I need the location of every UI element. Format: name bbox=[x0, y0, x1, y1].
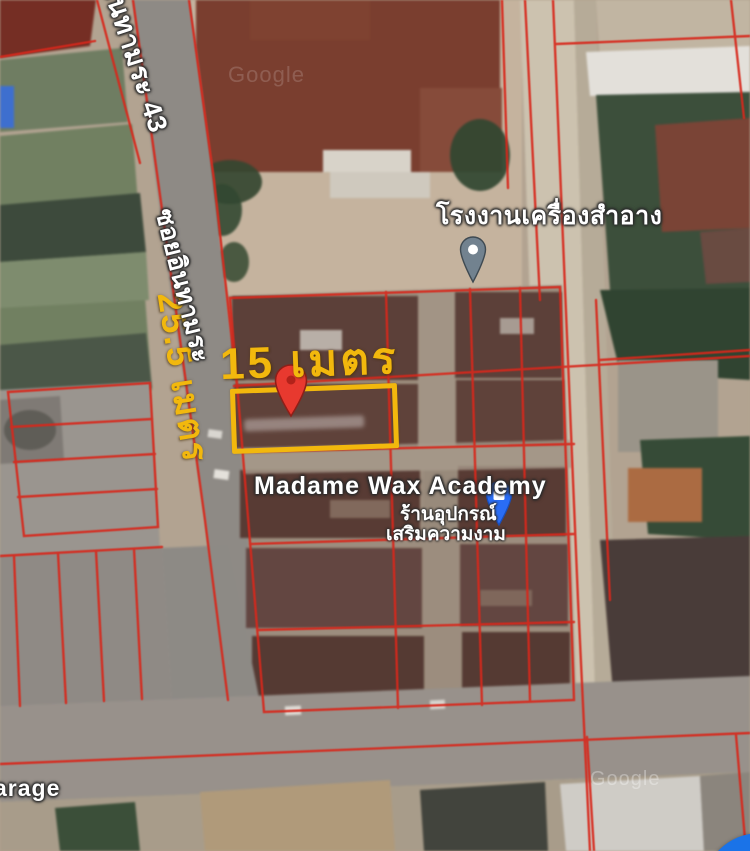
google-watermark-top: Google bbox=[228, 62, 305, 88]
academy-poi-label[interactable]: Madame Wax Academy bbox=[254, 473, 547, 499]
factory-poi-pin-icon[interactable] bbox=[459, 236, 487, 284]
garage-poi-label[interactable]: arage bbox=[0, 776, 60, 800]
plot-width-label: 15 เมตร bbox=[219, 323, 400, 399]
academy-poi-subtitle-2: เสริมความงาม bbox=[386, 519, 506, 549]
road-name-label-top: อินทามระ 43 bbox=[97, 0, 172, 136]
map-canvas[interactable]: 15 เมตร 25.5 เมตร ซอยอินทามระ อินทามระ 4… bbox=[0, 0, 750, 851]
map-action-button[interactable] bbox=[702, 833, 750, 851]
google-watermark-bottom: Google bbox=[590, 768, 661, 791]
factory-poi-label[interactable]: โรงงานเครื่องสำอาง bbox=[436, 203, 662, 229]
